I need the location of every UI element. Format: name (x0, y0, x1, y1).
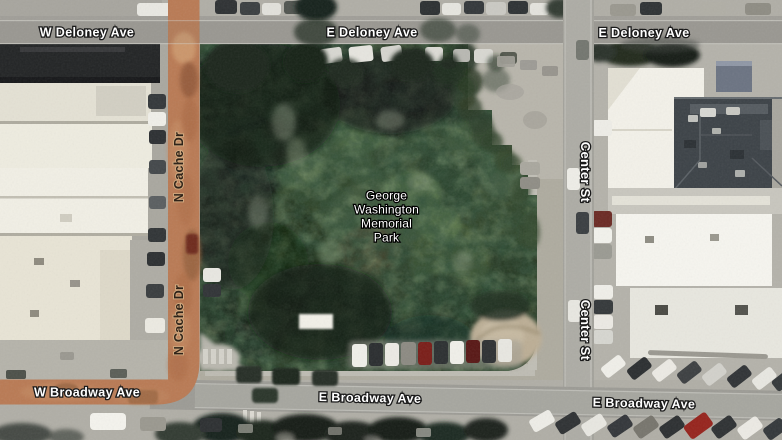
svg-text:N Cache Dr: N Cache Dr (172, 285, 186, 355)
svg-text:E Broadway Ave: E Broadway Ave (593, 396, 696, 412)
svg-text:Memorial: Memorial (361, 217, 412, 231)
svg-text:E Broadway Ave: E Broadway Ave (319, 390, 422, 406)
svg-text:George: George (366, 189, 407, 203)
svg-text:Center St: Center St (578, 142, 593, 203)
svg-text:E Deloney Ave: E Deloney Ave (598, 26, 689, 40)
svg-text:W Deloney Ave: W Deloney Ave (40, 26, 135, 40)
svg-text:W Broadway Ave: W Broadway Ave (34, 386, 140, 400)
svg-text:N Cache Dr: N Cache Dr (172, 132, 186, 202)
svg-text:Washington: Washington (354, 203, 419, 217)
svg-text:E Deloney Ave: E Deloney Ave (326, 26, 417, 40)
svg-text:Park: Park (374, 231, 400, 245)
svg-text:Center St: Center St (578, 300, 593, 361)
